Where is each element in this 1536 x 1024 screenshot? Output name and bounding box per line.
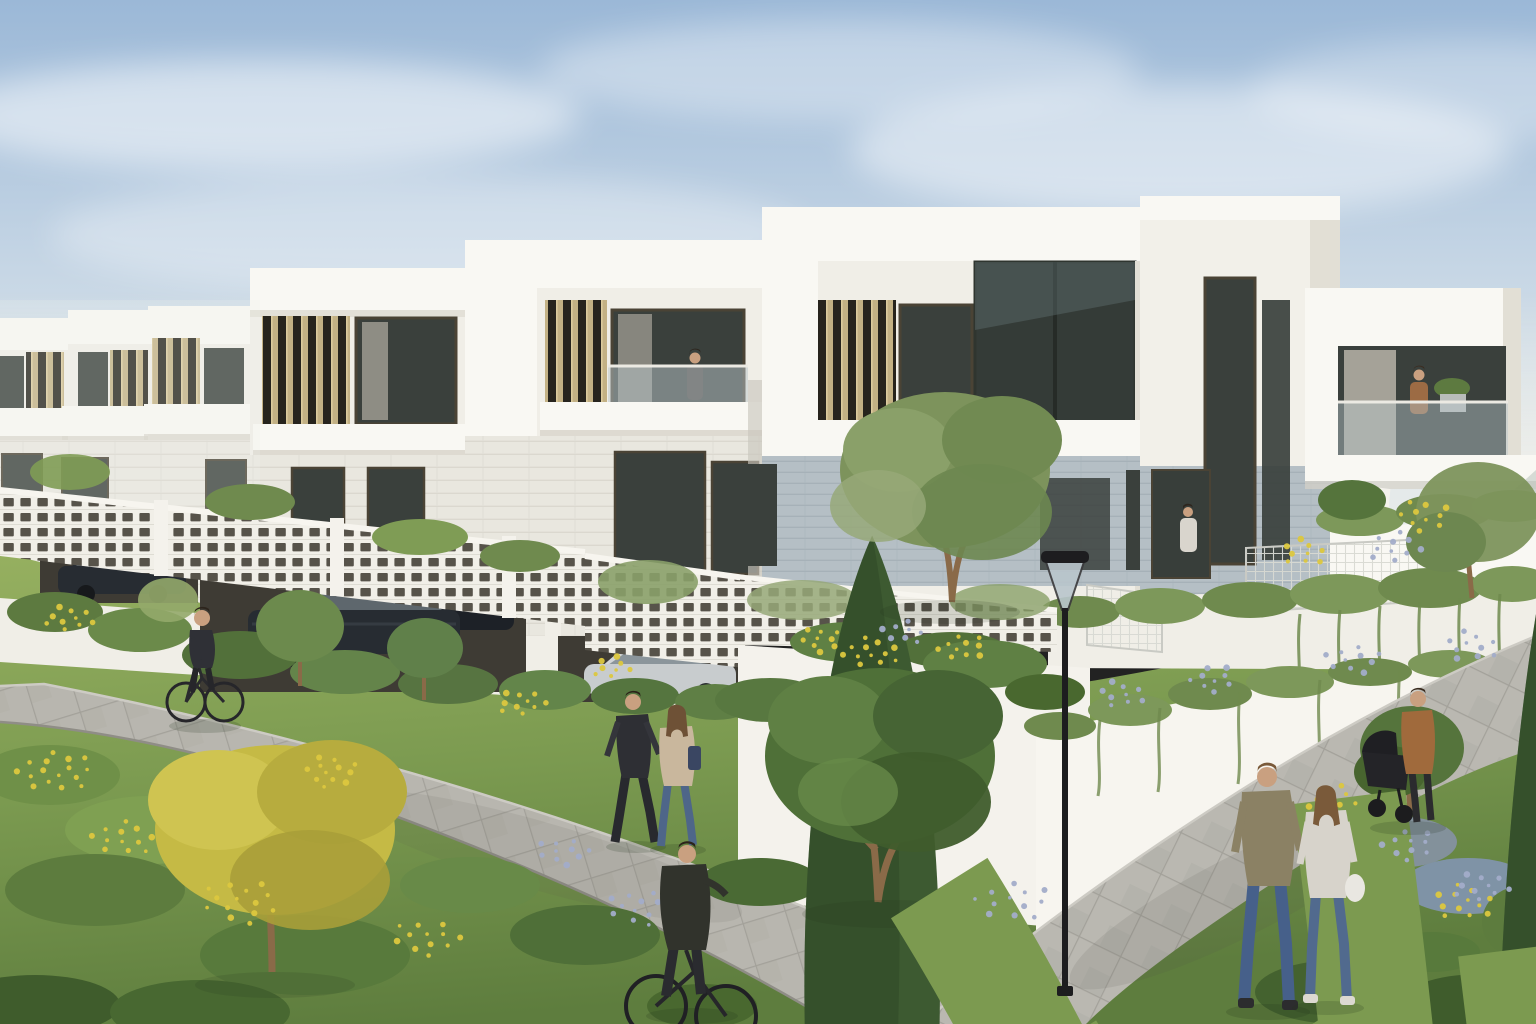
flower (521, 711, 525, 715)
flower (1454, 655, 1461, 662)
flower (816, 637, 820, 641)
flower (228, 914, 235, 921)
rendering-canvas (0, 0, 1536, 1024)
flower (618, 661, 623, 666)
canopy (873, 670, 1003, 762)
flower (532, 705, 536, 709)
flower (330, 777, 335, 782)
canopy (256, 590, 344, 662)
flower (609, 674, 613, 678)
flower (1339, 650, 1343, 654)
flower (1496, 876, 1501, 881)
flower (835, 630, 839, 634)
flower (1223, 664, 1230, 671)
flower (888, 635, 894, 641)
flower (1121, 684, 1126, 689)
flower (614, 653, 621, 660)
flower (1423, 840, 1427, 844)
flower (554, 842, 558, 846)
flower (89, 833, 95, 839)
flower (79, 784, 83, 788)
townhouse-4-fascia (250, 268, 465, 310)
flower (1286, 559, 1290, 563)
flower (1353, 801, 1357, 805)
flower (31, 783, 37, 789)
flower (1222, 673, 1227, 678)
flower (1298, 536, 1305, 543)
flower (1393, 837, 1398, 842)
flower (74, 616, 78, 620)
flower (554, 857, 559, 862)
flower (253, 900, 259, 906)
flower (1188, 678, 1192, 682)
flower (136, 840, 141, 845)
flower (1404, 551, 1409, 556)
flower (840, 652, 846, 658)
canopy (912, 464, 1052, 560)
flower (149, 834, 156, 841)
flower (1021, 903, 1027, 909)
tree-shadow (880, 600, 1020, 624)
flower (1438, 513, 1443, 518)
flower (1306, 803, 1313, 810)
flower (50, 613, 56, 619)
flower (104, 827, 108, 831)
flower (1437, 523, 1442, 528)
flower (1202, 684, 1206, 688)
flower (225, 905, 230, 910)
flower (963, 640, 969, 646)
flower (1454, 647, 1459, 652)
flower (1440, 903, 1446, 909)
flower (1398, 530, 1403, 535)
flower (502, 700, 508, 706)
flower (336, 765, 342, 771)
head (1257, 767, 1277, 787)
flower (59, 785, 65, 791)
flower (500, 709, 505, 714)
fence-post (330, 518, 344, 596)
flower (599, 658, 605, 664)
flower (305, 766, 311, 772)
flower (126, 848, 131, 853)
flower (1199, 673, 1205, 679)
flower (977, 636, 982, 641)
flower (1109, 678, 1116, 685)
canopy (798, 758, 898, 826)
lamp-base (1057, 986, 1073, 996)
flower (102, 847, 108, 853)
flower (1405, 858, 1410, 863)
flower (57, 774, 61, 778)
flower (611, 911, 617, 917)
flower (314, 777, 319, 782)
flower (915, 640, 919, 644)
flower (891, 644, 898, 651)
flower (1032, 915, 1037, 920)
townhouse-7-slot-window (1262, 300, 1290, 560)
flower (1320, 548, 1325, 553)
flower (1456, 905, 1462, 911)
flower (1477, 903, 1481, 907)
head (1414, 370, 1425, 381)
flower (1337, 802, 1343, 808)
flower (1100, 688, 1106, 694)
stroller-body (1362, 752, 1410, 790)
flower (503, 690, 510, 697)
shoe (1340, 996, 1355, 1005)
townhouse-7-parapet (1140, 196, 1340, 220)
flower (831, 643, 837, 649)
flower (907, 628, 911, 632)
flower (1491, 640, 1495, 644)
flower (67, 765, 72, 770)
tree-shadow (195, 972, 355, 998)
flower (532, 691, 537, 696)
white-bag (1345, 874, 1365, 902)
flower (82, 755, 87, 760)
flower (51, 750, 56, 755)
flower (44, 621, 49, 626)
flower (829, 636, 835, 642)
head (194, 610, 210, 626)
flower (441, 932, 445, 936)
flower (1474, 635, 1478, 639)
townhouse-5-pier (465, 288, 537, 444)
flower (90, 620, 96, 626)
curtain (362, 322, 388, 420)
flower (956, 635, 960, 639)
flower (1492, 653, 1497, 658)
flower (594, 672, 598, 676)
flower (946, 642, 950, 646)
flower (986, 911, 993, 918)
flower (631, 918, 636, 923)
flower (1344, 658, 1348, 662)
flower (805, 627, 811, 633)
flower (65, 756, 72, 763)
townhouse-5-fascia (465, 240, 762, 288)
glass-balustrade (608, 366, 748, 406)
flower (77, 623, 81, 627)
flower (1213, 679, 1217, 683)
canopy (138, 578, 198, 622)
handbag (688, 746, 701, 770)
flower (120, 840, 124, 844)
flower (60, 619, 66, 625)
flower (572, 839, 576, 843)
flower (893, 624, 898, 629)
flower (1468, 913, 1472, 917)
flower (905, 619, 910, 624)
flower (118, 829, 124, 835)
flower (1011, 881, 1017, 887)
townhouse-4-balcony-slab (253, 424, 465, 450)
flower (40, 767, 46, 773)
flower (428, 941, 434, 947)
flower (812, 643, 817, 648)
flower (1406, 537, 1412, 543)
flower (271, 908, 276, 913)
head (678, 845, 696, 863)
flower (869, 654, 873, 658)
flower (1459, 883, 1465, 889)
flower (1443, 913, 1448, 918)
townhouse-4-louver-screen (262, 316, 350, 426)
flower (235, 897, 239, 901)
flower (609, 896, 615, 902)
flower (883, 651, 888, 656)
flower (1289, 551, 1295, 557)
flower (1413, 509, 1419, 515)
flower (353, 762, 358, 767)
flower (244, 889, 248, 893)
head (1183, 507, 1193, 517)
flower (1204, 665, 1210, 671)
flower (1377, 652, 1382, 657)
flower (801, 637, 806, 642)
flower (600, 665, 606, 671)
flower (1039, 900, 1043, 904)
flower (526, 699, 530, 703)
flower (1369, 659, 1375, 665)
flower (973, 897, 977, 901)
flower (1408, 500, 1413, 505)
flower (332, 758, 336, 762)
flower (1399, 512, 1403, 516)
flower (1323, 652, 1329, 658)
flower (1461, 628, 1467, 634)
flower (1418, 546, 1425, 553)
flower (29, 774, 33, 778)
flower (1409, 839, 1413, 843)
flower (1306, 552, 1310, 556)
shadow (1370, 821, 1446, 835)
flower (576, 854, 582, 860)
flower (894, 659, 898, 663)
flower (1042, 887, 1048, 893)
flower (1493, 891, 1497, 895)
flower (1475, 653, 1481, 659)
flower (538, 841, 544, 847)
flower (856, 654, 860, 658)
lamp-cap (1041, 551, 1089, 563)
flower (343, 779, 350, 786)
flower (1478, 645, 1484, 651)
lamp-pole (1062, 608, 1068, 992)
flower (1375, 547, 1379, 551)
townhouse-7-tall-window (1205, 278, 1255, 564)
flower (1306, 543, 1311, 548)
ground-window (745, 464, 777, 566)
townhouse-scene (0, 0, 1536, 1024)
torso (189, 630, 215, 668)
townhouse-5-balcony-slab (540, 402, 764, 430)
flower (134, 826, 140, 832)
townhouse-6-louver-screen (818, 300, 896, 420)
flower (1487, 884, 1491, 888)
flower (651, 891, 656, 896)
flower (1140, 698, 1146, 704)
shoe (1238, 998, 1254, 1008)
flower (407, 932, 412, 937)
flower (247, 921, 252, 926)
torso (1401, 710, 1435, 774)
canopy (257, 740, 407, 844)
flower (817, 649, 824, 656)
flower (1358, 653, 1364, 659)
flower (74, 775, 79, 780)
flower (56, 604, 63, 611)
flower (1124, 693, 1128, 697)
glass-balustrade (1338, 402, 1508, 460)
flower (879, 626, 886, 633)
flower (976, 643, 982, 649)
flower (324, 771, 328, 775)
flower (144, 849, 148, 853)
head (625, 694, 641, 710)
canopy (830, 470, 926, 542)
flower (1485, 911, 1491, 917)
fascia-shadow (250, 310, 465, 317)
flower (1435, 891, 1442, 898)
torso (1180, 518, 1197, 552)
flower (819, 630, 823, 634)
flower (426, 953, 431, 958)
flower (124, 819, 129, 824)
flower (1411, 521, 1415, 525)
flower (63, 627, 67, 631)
flower (1012, 912, 1018, 918)
flower (539, 853, 544, 858)
flower (863, 636, 868, 641)
flower (1479, 875, 1484, 880)
flower (1506, 886, 1512, 892)
flower (902, 635, 908, 641)
flower (69, 608, 74, 613)
flower (1455, 892, 1460, 897)
flower (425, 932, 429, 936)
flower (949, 654, 954, 659)
flower (633, 909, 637, 913)
flower (1393, 850, 1399, 856)
flower (1424, 518, 1428, 522)
flower (1008, 896, 1012, 900)
flower (1377, 536, 1381, 540)
flower (266, 893, 270, 897)
flower (1348, 666, 1353, 671)
flower (398, 924, 402, 928)
flower (517, 693, 522, 698)
flower (1136, 687, 1141, 692)
flower (1370, 554, 1376, 560)
flower (1417, 528, 1423, 534)
flower (1344, 792, 1348, 796)
canopy (768, 676, 888, 764)
flower (1477, 897, 1481, 901)
flower (207, 887, 211, 891)
flower (514, 704, 520, 710)
flower (1331, 664, 1336, 669)
flower (1423, 502, 1429, 508)
canopy (387, 618, 463, 678)
flower (1447, 638, 1452, 643)
flower (955, 648, 959, 652)
flower (1109, 703, 1113, 707)
flower (627, 667, 632, 672)
flower (850, 645, 854, 649)
flower (259, 881, 265, 887)
townhouse-5-louver-screen (545, 300, 607, 408)
fence-post (154, 500, 168, 576)
flower (214, 895, 219, 900)
flower (105, 838, 109, 842)
flower (563, 862, 570, 869)
flower (647, 912, 652, 917)
flower (1464, 871, 1471, 878)
flower (227, 882, 233, 888)
flower (614, 668, 618, 672)
flower (857, 662, 863, 668)
canopy (1406, 512, 1486, 572)
flower (878, 660, 883, 665)
flower (394, 938, 401, 945)
flower (875, 639, 881, 645)
flower (569, 846, 575, 852)
flower (543, 700, 549, 706)
flower (1390, 539, 1396, 545)
flower (347, 769, 353, 775)
flower (1226, 682, 1231, 687)
flower (1409, 847, 1415, 853)
head (1410, 691, 1426, 707)
flower (440, 922, 446, 928)
flower (27, 760, 32, 765)
flower (1472, 888, 1478, 894)
flower (251, 910, 257, 916)
flower (1339, 783, 1345, 789)
flower (205, 906, 209, 910)
flower (935, 646, 941, 652)
flower (1390, 549, 1394, 553)
flower (1108, 694, 1114, 700)
flower (989, 890, 994, 895)
flower (1443, 504, 1450, 511)
flower (1023, 890, 1027, 894)
flower (1379, 841, 1386, 848)
flower (1304, 559, 1308, 563)
flower (1284, 543, 1290, 549)
flower (1126, 700, 1130, 704)
flower (554, 849, 558, 853)
flower (416, 923, 421, 928)
flower (919, 631, 923, 635)
flower (627, 894, 631, 898)
flower (44, 758, 50, 764)
torso (660, 864, 711, 950)
flower (14, 768, 20, 774)
flower (318, 764, 322, 768)
flower (47, 780, 51, 784)
flower (647, 923, 651, 927)
flower (1392, 558, 1397, 563)
flower (638, 898, 644, 904)
flower (964, 652, 969, 657)
flower (1211, 689, 1217, 695)
flower (1317, 559, 1323, 565)
flower (992, 901, 997, 906)
shoe (1303, 994, 1318, 1003)
